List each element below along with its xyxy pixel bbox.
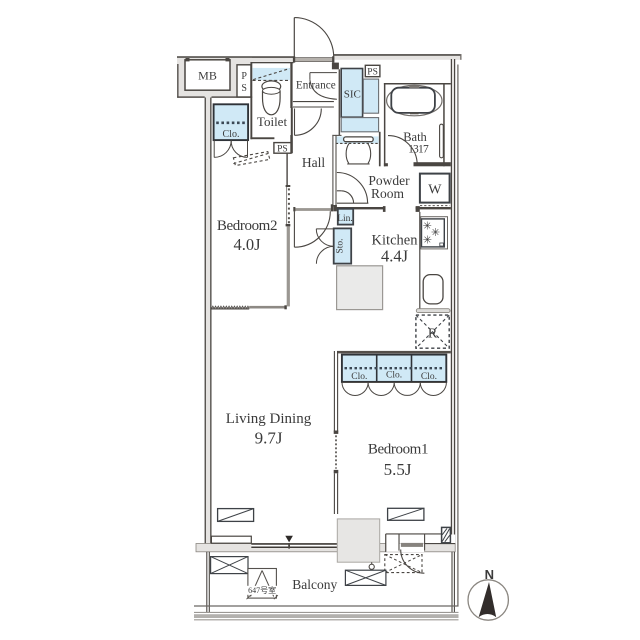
svg-text:Balcony: Balcony [292,577,337,592]
svg-text:9.7J: 9.7J [255,429,283,448]
svg-text:MB: MB [198,69,217,83]
svg-text:PS: PS [367,68,378,78]
svg-text:Clo.: Clo. [386,371,402,381]
svg-text:Room: Room [371,186,405,201]
svg-text:4.4J: 4.4J [381,247,409,266]
svg-text:647号室: 647号室 [248,585,276,595]
svg-text:4.0J: 4.0J [233,235,261,254]
svg-text:W: W [428,183,442,198]
svg-text:R: R [428,326,438,341]
svg-text:5.5J: 5.5J [384,460,412,479]
svg-text:1317: 1317 [408,143,429,155]
svg-text:S: S [241,83,247,94]
svg-text:Hall: Hall [302,155,325,170]
svg-text:Clo.: Clo. [421,372,437,382]
svg-text:Bedroom2: Bedroom2 [217,218,277,234]
svg-text:Clo.: Clo. [351,372,367,382]
svg-text:Toilet: Toilet [257,114,288,129]
svg-text:✳: ✳ [423,235,432,247]
svg-text:Lin.: Lin. [337,214,353,224]
svg-text:PS: PS [277,145,288,155]
svg-text:Clo.: Clo. [223,129,240,140]
svg-text:Bedroom1: Bedroom1 [368,442,428,458]
svg-text:Entrance: Entrance [296,80,336,92]
svg-text:Living Dining: Living Dining [226,411,312,427]
svg-text:Sto.: Sto. [336,238,346,253]
svg-text:P: P [241,71,247,82]
svg-text:✳: ✳ [431,227,440,239]
svg-text:SIC: SIC [344,88,361,100]
